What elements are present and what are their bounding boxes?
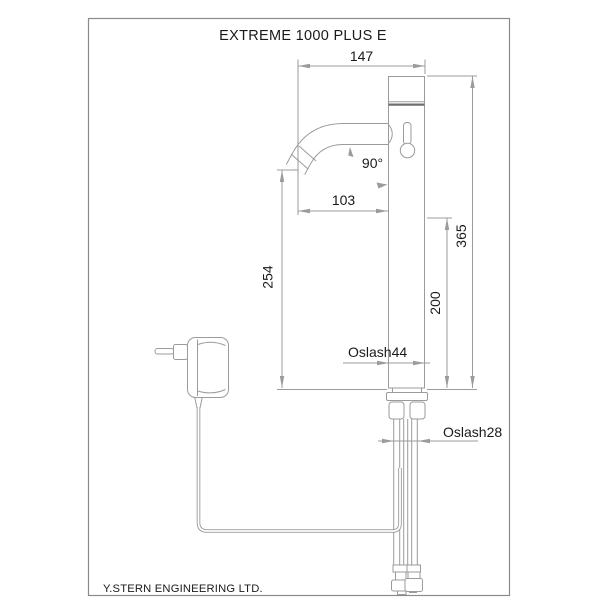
drawing-title: EXTREME 1000 PLUS E [219, 28, 387, 44]
dim-200-label: 200 [427, 291, 443, 315]
dim-103: 103 [298, 192, 388, 213]
mounting-base [387, 388, 428, 419]
hose-fitting [407, 565, 421, 572]
dim-90-label: 90° [362, 155, 383, 171]
drawing-frame [89, 19, 510, 596]
base-neck [393, 388, 422, 393]
dim-254-label: 254 [260, 265, 276, 289]
hose-nut [405, 579, 423, 592]
dim-90deg: 90° [348, 147, 387, 189]
supply-hoses [392, 419, 423, 595]
dim-44-label: Oslash44 [348, 344, 407, 360]
power-cable [199, 407, 401, 531]
hose-tab [398, 591, 407, 595]
plug-face [174, 345, 188, 360]
mounting-nut [410, 402, 425, 419]
dim-diameter-28: Oslash28 [378, 424, 502, 443]
dim-365-label: 365 [453, 224, 469, 248]
faucet-assembly [291, 77, 428, 595]
hose-fitting [393, 565, 408, 572]
power-adapter [155, 338, 229, 409]
adapter-body [188, 338, 229, 398]
company-name: Y.STERN ENGINEERING LTD. [103, 583, 263, 595]
strain-relief [195, 398, 202, 409]
hose-coupling [396, 572, 407, 580]
dim-365: 365 [427, 76, 477, 390]
dim-28-label: Oslash28 [443, 424, 502, 440]
technical-drawing-page: EXTREME 1000 PLUS E Y.STERN ENGINEERING … [0, 0, 600, 600]
base-flange [387, 393, 428, 401]
drawing-canvas: EXTREME 1000 PLUS E Y.STERN ENGINEERING … [0, 0, 600, 600]
dim-147-label: 147 [350, 48, 374, 64]
dim-200: 200 [427, 218, 452, 388]
dim-103-label: 103 [332, 192, 356, 208]
mounting-nut [389, 402, 404, 419]
plug-prong [155, 349, 174, 355]
